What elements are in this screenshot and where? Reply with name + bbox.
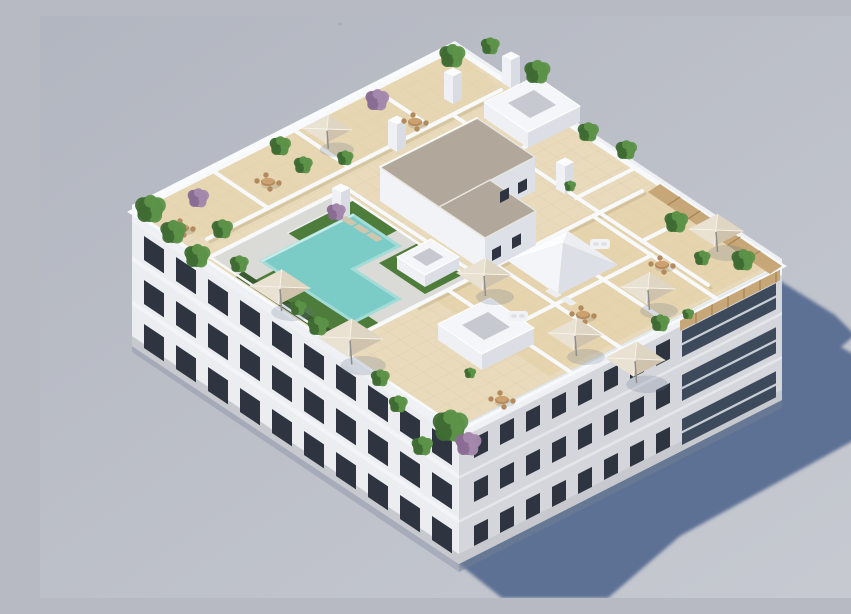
palm-plant: [372, 377, 381, 386]
dining-set: [254, 178, 259, 183]
dining-set: [648, 261, 653, 266]
palm-plant: [390, 403, 399, 412]
chimney: [453, 72, 462, 104]
palm-plant: [314, 316, 323, 325]
dining-set: [190, 226, 195, 231]
palm-plant: [309, 325, 319, 335]
dining-set: [262, 178, 274, 184]
potted-plant: [565, 186, 571, 192]
palm-plant: [338, 157, 346, 165]
purple-bougainvillea: [332, 203, 340, 211]
palm-plant: [447, 44, 458, 55]
potted-plant: [686, 309, 691, 314]
palm-plant: [617, 149, 627, 159]
palm-plant: [137, 208, 151, 222]
palm-plant: [482, 45, 491, 54]
roof-edge-tree: [443, 410, 458, 425]
dining-set: [657, 255, 662, 260]
chimney: [397, 120, 406, 152]
lounge-sofa: [593, 242, 599, 246]
lounge-sofa: [601, 242, 607, 246]
roof-edge-tree: [418, 436, 427, 445]
palm-plant: [376, 369, 384, 377]
palm-plant: [218, 219, 227, 228]
potted-plant: [683, 314, 689, 320]
dining-set: [496, 396, 508, 402]
dining-set: [661, 269, 666, 274]
palm-plant: [394, 395, 402, 403]
palm-plant: [486, 37, 494, 45]
umbrella-shadow: [567, 349, 605, 365]
dining-set: [267, 186, 272, 191]
potted-plant: [568, 181, 573, 186]
dining-set: [497, 390, 502, 395]
dining-set: [569, 311, 574, 316]
palm-plant: [144, 195, 157, 208]
palm-plant: [739, 249, 749, 259]
palm-plant: [291, 307, 299, 315]
palm-plant: [733, 259, 744, 270]
palm-plant: [162, 231, 174, 243]
chimney: [502, 56, 511, 88]
chimney: [388, 120, 397, 152]
palm-plant: [342, 150, 349, 157]
lounge-sofa: [519, 314, 525, 318]
palm-plant: [699, 250, 706, 257]
dining-set: [591, 313, 596, 318]
roof-edge-tree: [435, 425, 452, 442]
palm-plant: [299, 156, 307, 164]
dining-set: [577, 311, 589, 317]
dining-set: [409, 118, 421, 124]
palm-plant: [441, 55, 453, 67]
dining-set: [276, 180, 281, 185]
palm-plant: [231, 263, 240, 272]
lounge-sofa: [511, 314, 517, 318]
palm-plant: [271, 145, 281, 155]
purple-bougainvillea: [463, 432, 474, 443]
palm-plant: [526, 71, 538, 83]
chimney: [511, 56, 520, 88]
potted-plant: [468, 368, 473, 373]
dining-set: [488, 396, 493, 401]
palm-plant: [672, 211, 682, 221]
dining-set: [410, 112, 415, 117]
palm-plant: [186, 255, 198, 267]
palm-plant: [532, 60, 543, 71]
purple-bougainvillea: [457, 443, 469, 455]
palm-plant: [652, 322, 661, 331]
purple-bougainvillea: [194, 188, 203, 197]
palm-plant: [276, 136, 285, 145]
potted-plant: [465, 373, 471, 379]
purple-bougainvillea: [189, 197, 199, 207]
dining-set: [263, 172, 268, 177]
dining-set: [578, 305, 583, 310]
dining-set: [510, 398, 515, 403]
palm-plant: [579, 131, 589, 141]
palm-plant: [656, 314, 664, 322]
dining-set: [401, 118, 406, 123]
dining-set: [670, 263, 675, 268]
palm-plant: [235, 255, 243, 263]
palm-plant: [295, 300, 302, 307]
architectural-render-figure: [40, 16, 851, 598]
dining-set: [423, 120, 428, 125]
purple-bougainvillea: [367, 99, 378, 110]
palm-plant: [168, 220, 179, 231]
apartment-building-aerial-render: [40, 16, 851, 598]
dust-speck: [338, 23, 342, 26]
palm-plant: [192, 244, 203, 255]
roof-edge-tree: [413, 445, 423, 455]
palm-plant: [584, 122, 593, 131]
palm-plant: [622, 140, 631, 149]
dining-set: [501, 404, 506, 409]
umbrella-shadow: [476, 289, 514, 305]
palm-plant: [695, 257, 703, 265]
chimney: [444, 72, 453, 104]
chimney: [556, 162, 565, 194]
palm-plant: [213, 228, 223, 238]
umbrella-shadow: [626, 376, 668, 394]
dining-set: [656, 261, 668, 267]
palm-plant: [295, 164, 304, 173]
palm-plant: [666, 221, 677, 232]
dining-set: [414, 126, 419, 131]
purple-bougainvillea: [373, 89, 383, 99]
purple-bougainvillea: [328, 211, 337, 220]
